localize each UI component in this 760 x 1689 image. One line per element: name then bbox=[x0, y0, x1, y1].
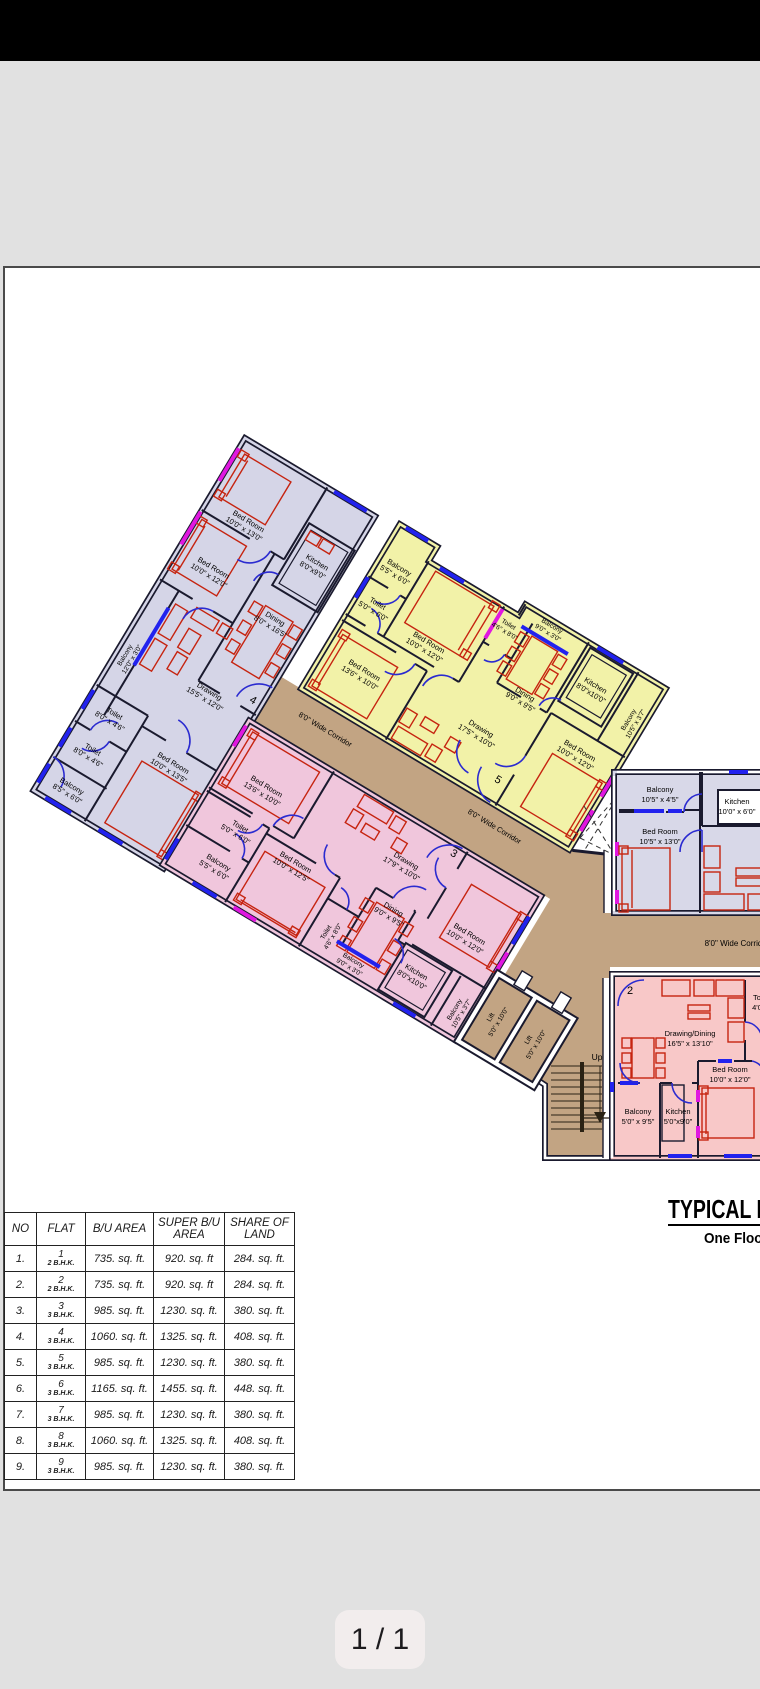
svg-text:Balcony: Balcony bbox=[647, 785, 674, 794]
svg-text:5'0" x 9'5": 5'0" x 9'5" bbox=[622, 1117, 655, 1126]
svg-text:10'0" x 12'0": 10'0" x 12'0" bbox=[709, 1075, 750, 1084]
svg-text:10'5" x 4'5": 10'5" x 4'5" bbox=[642, 795, 679, 804]
svg-text:10'0" x 6'0": 10'0" x 6'0" bbox=[719, 807, 756, 816]
svg-text:4'0: 4'0 bbox=[752, 1003, 760, 1012]
svg-text:16'5" x 13'10": 16'5" x 13'10" bbox=[667, 1039, 713, 1048]
svg-text:Bed Room: Bed Room bbox=[712, 1065, 747, 1074]
svg-text:10'5" x 13'0": 10'5" x 13'0" bbox=[639, 837, 680, 846]
svg-text:Kitchen: Kitchen bbox=[665, 1107, 690, 1116]
svg-text:Up: Up bbox=[592, 1052, 603, 1062]
svg-text:To: To bbox=[753, 993, 760, 1002]
svg-text:Kitchen: Kitchen bbox=[724, 797, 749, 806]
svg-text:Bed Room: Bed Room bbox=[642, 827, 677, 836]
svg-text:5'0"x9'0": 5'0"x9'0" bbox=[664, 1117, 693, 1126]
svg-text:Balcony: Balcony bbox=[625, 1107, 652, 1116]
svg-text:2: 2 bbox=[627, 985, 633, 997]
svg-text:Drawing/Dining: Drawing/Dining bbox=[665, 1029, 716, 1038]
svg-text:8'0" Wide Corridor: 8'0" Wide Corridor bbox=[705, 939, 760, 948]
